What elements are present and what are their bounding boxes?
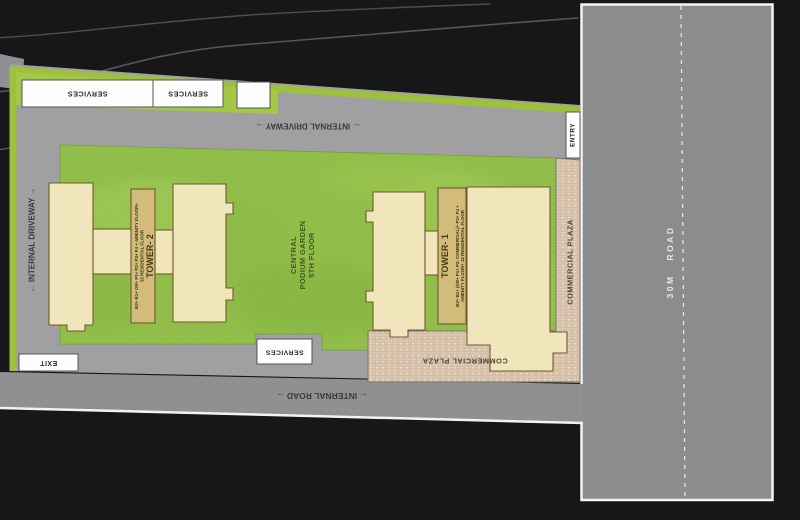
exit-box: EXIT	[19, 354, 78, 371]
tower-2-right-wing	[173, 184, 233, 322]
tower-1-left-wing	[366, 192, 425, 337]
internal-driveway-top-label: ← INTERNAL DRIVEWAY →	[256, 122, 361, 131]
garden-label-line-3: 5TH FLOOR	[307, 232, 316, 278]
garden-label-line-2: PODIUM GARDEN	[298, 221, 307, 290]
internal-driveway-left-label: ← INTERNAL DRIVEWAY →	[28, 188, 37, 293]
tower-2-desc-line-2: 32 RESIDENTIAL FLOOR	[139, 229, 144, 282]
tower-1-desc-line-2: AMENITY FLOOR+ 32 RESIDENTIAL FLOOR	[460, 209, 465, 302]
services-box-3	[237, 82, 270, 108]
services-box-2-label: SERVICES	[168, 90, 208, 99]
road-30m-surface	[582, 5, 773, 501]
road-30m: 30M ROAD	[582, 5, 773, 501]
commercial-plaza-side-label: COMMERCIAL PLAZA	[566, 219, 575, 305]
tower-2: B2+ B1+ GR+ P1+ P2+ P3+ P4 + AMENITY FLO…	[49, 183, 233, 331]
internal-road-label: ← INTERNAL ROAD →	[276, 391, 368, 401]
tower-2-connector-right	[155, 230, 173, 274]
tower-1-connector-left	[425, 231, 438, 275]
tower-1-name: TOWER- 1	[440, 234, 450, 278]
services-box-bottom: SERVICES	[257, 339, 312, 364]
services-box-bottom-label: SERVICES	[265, 349, 303, 356]
tower-2-desc-line-1: B2+ B1+ GR+ P1+ P2+ P3+ P4 + AMENITY FLO…	[134, 203, 139, 309]
tower-2-name: TOWER- 2	[145, 234, 155, 278]
exit-label: EXIT	[39, 359, 57, 366]
road-30m-label: 30M ROAD	[665, 226, 675, 299]
tower-2-left-wing	[49, 183, 93, 331]
entry-label: ENTRY	[570, 123, 577, 147]
commercial-plaza-bottom-label: COMMERCIAL PLAZA	[422, 357, 508, 366]
site-plan: 30M ROAD ← INTERNAL ROAD → SERVICES	[0, 0, 800, 520]
services-box-1-label: SERVICES	[67, 90, 107, 99]
tower-2-connector-left	[93, 229, 131, 274]
garden-label-line-1: CENTRAL	[289, 236, 298, 274]
entry-box: ENTRY	[566, 112, 580, 158]
